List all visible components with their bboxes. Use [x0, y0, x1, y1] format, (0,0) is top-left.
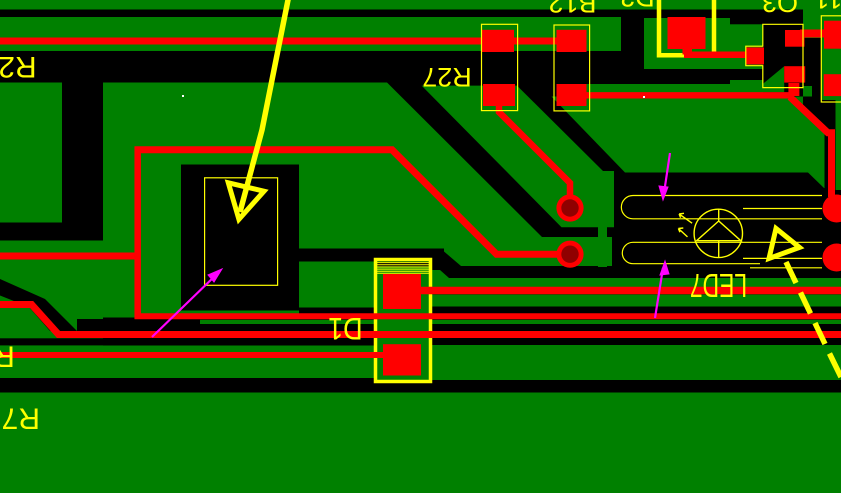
svg-text:R27: R27	[422, 62, 472, 92]
svg-text:D1: D1	[328, 311, 362, 345]
svg-text:R7: R7	[2, 402, 40, 435]
svg-text:R: R	[0, 340, 15, 373]
svg-text:Q3: Q3	[762, 0, 798, 18]
svg-text:R11: R11	[814, 0, 841, 14]
svg-text:LED7: LED7	[690, 266, 747, 303]
svg-text:B12: B12	[548, 0, 596, 18]
svg-text:R2: R2	[0, 50, 37, 83]
svg-text:D2: D2	[620, 0, 655, 12]
